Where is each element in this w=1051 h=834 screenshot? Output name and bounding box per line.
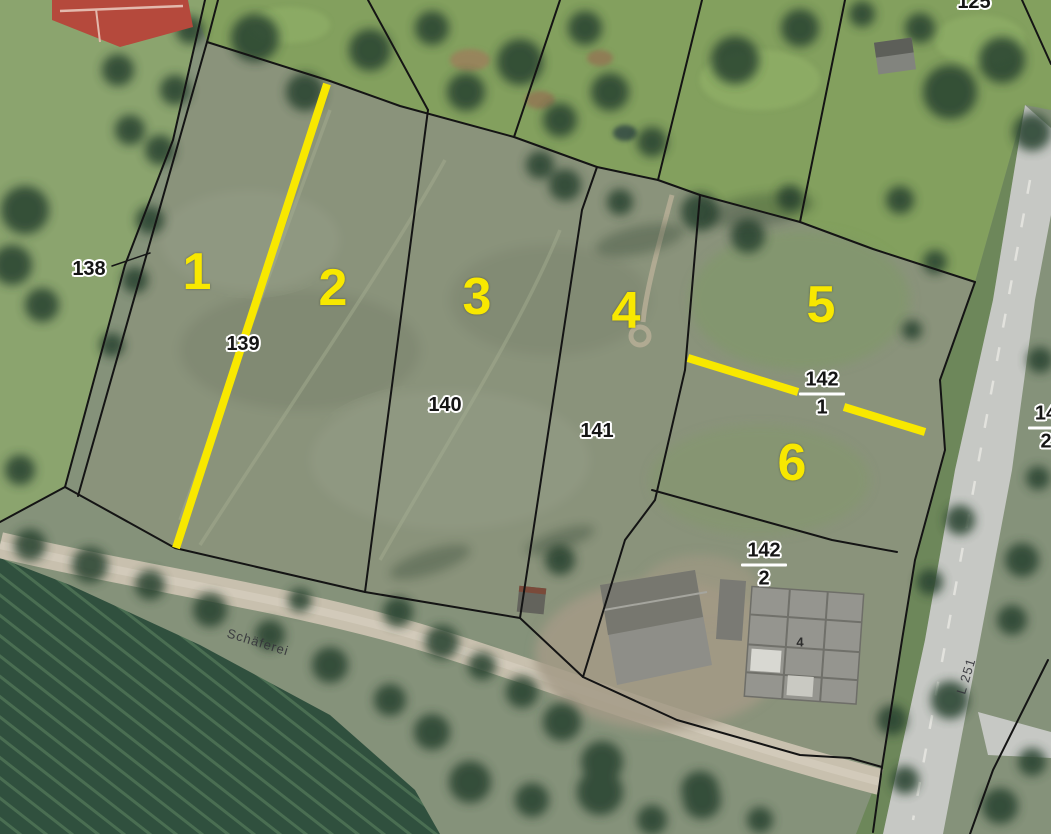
fraction-numerator: 142 <box>741 541 787 562</box>
small-shed-top-right <box>874 38 916 75</box>
fraction-bar <box>741 564 787 567</box>
aerial-basemap <box>0 0 1051 834</box>
fraction-bar <box>1028 427 1051 430</box>
parcel-label-142-1: 142 1 <box>799 370 845 419</box>
farm-greenhouse <box>744 587 863 705</box>
fraction-denominator: 2 <box>1018 432 1051 453</box>
plot-label-3: 3 <box>463 271 492 323</box>
fraction-numerator: 142 <box>799 370 845 391</box>
parcel-label-138: 138 <box>72 259 105 279</box>
plot-label-6: 6 <box>778 437 807 489</box>
aerial-map-canvas[interactable]: 1 2 3 4 5 6 138 139 140 141 142 1 142 2 … <box>0 0 1051 834</box>
parcel-label-140: 140 <box>428 395 461 415</box>
parcel-label-125-clipped: 125 <box>957 0 990 12</box>
fraction-denominator: 1 <box>799 398 845 419</box>
plot-label-5: 5 <box>807 279 836 331</box>
farm-barn <box>600 570 712 685</box>
parcel-label-141: 141 <box>580 421 613 441</box>
house-number-label: 4 <box>796 635 803 650</box>
fraction-bar <box>799 393 845 396</box>
parcel-label-139: 139 <box>226 334 259 354</box>
fraction-numerator: 14 <box>1018 404 1051 425</box>
parcel-label-edge-clipped: 14 2 <box>1028 404 1051 453</box>
fraction-denominator: 2 <box>741 569 787 590</box>
plot-label-2: 2 <box>319 262 348 314</box>
parcel-label-142-2: 142 2 <box>741 541 787 590</box>
plot-label-4: 4 <box>612 285 641 337</box>
plot-label-1: 1 <box>183 246 212 298</box>
